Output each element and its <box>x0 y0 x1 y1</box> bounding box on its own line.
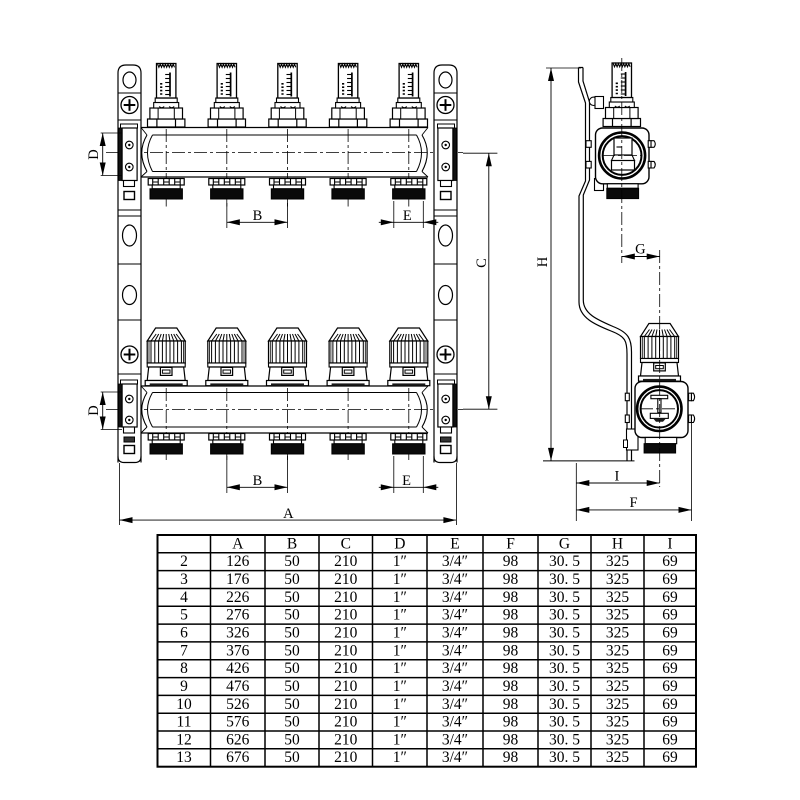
svg-text:210: 210 <box>334 749 358 766</box>
svg-text:69: 69 <box>662 571 678 588</box>
svg-text:30. 5: 30. 5 <box>549 678 580 695</box>
svg-text:69: 69 <box>662 589 678 606</box>
svg-text:H: H <box>612 535 623 552</box>
svg-text:50: 50 <box>284 553 300 570</box>
svg-text:98: 98 <box>503 589 519 606</box>
svg-text:1″: 1″ <box>393 625 407 642</box>
svg-text:376: 376 <box>226 642 250 659</box>
svg-text:30. 5: 30. 5 <box>549 696 580 713</box>
svg-text:30. 5: 30. 5 <box>549 589 580 606</box>
svg-text:30. 5: 30. 5 <box>549 660 580 677</box>
svg-text:11: 11 <box>177 714 192 731</box>
svg-text:325: 325 <box>606 714 630 731</box>
svg-text:3/4″: 3/4″ <box>442 589 468 606</box>
svg-text:50: 50 <box>284 660 300 677</box>
svg-text:210: 210 <box>334 714 358 731</box>
svg-text:98: 98 <box>503 678 519 695</box>
svg-text:B: B <box>253 208 263 224</box>
svg-text:4: 4 <box>180 589 188 606</box>
svg-text:G: G <box>635 241 646 257</box>
svg-text:98: 98 <box>503 553 519 570</box>
svg-text:50: 50 <box>284 714 300 731</box>
svg-text:98: 98 <box>503 607 519 624</box>
svg-text:E: E <box>450 535 459 552</box>
svg-text:30. 5: 30. 5 <box>549 749 580 766</box>
svg-text:69: 69 <box>662 660 678 677</box>
svg-text:30. 5: 30. 5 <box>549 731 580 748</box>
svg-text:3: 3 <box>180 571 188 588</box>
svg-text:30. 5: 30. 5 <box>549 642 580 659</box>
svg-text:69: 69 <box>662 642 678 659</box>
svg-text:210: 210 <box>334 625 358 642</box>
svg-text:50: 50 <box>284 696 300 713</box>
svg-text:210: 210 <box>334 731 358 748</box>
svg-text:1″: 1″ <box>393 642 407 659</box>
svg-text:69: 69 <box>662 749 678 766</box>
svg-text:325: 325 <box>606 660 630 677</box>
svg-text:50: 50 <box>284 571 300 588</box>
svg-text:98: 98 <box>503 731 519 748</box>
svg-text:325: 325 <box>606 625 630 642</box>
svg-text:50: 50 <box>284 625 300 642</box>
svg-text:3/4″: 3/4″ <box>442 660 468 677</box>
svg-text:D: D <box>86 149 102 159</box>
svg-text:8: 8 <box>180 660 188 677</box>
svg-text:3/4″: 3/4″ <box>442 553 468 570</box>
svg-text:210: 210 <box>334 553 358 570</box>
svg-text:30. 5: 30. 5 <box>549 607 580 624</box>
svg-text:3/4″: 3/4″ <box>442 571 468 588</box>
svg-text:210: 210 <box>334 571 358 588</box>
svg-text:69: 69 <box>662 731 678 748</box>
svg-text:13: 13 <box>176 749 192 766</box>
svg-text:C: C <box>341 535 351 552</box>
svg-text:30. 5: 30. 5 <box>549 571 580 588</box>
svg-text:326: 326 <box>226 625 250 642</box>
svg-text:1″: 1″ <box>393 731 407 748</box>
svg-text:F: F <box>506 535 515 552</box>
svg-text:12: 12 <box>176 731 192 748</box>
svg-text:69: 69 <box>662 607 678 624</box>
svg-text:210: 210 <box>334 696 358 713</box>
svg-text:98: 98 <box>503 642 519 659</box>
svg-text:98: 98 <box>503 660 519 677</box>
svg-text:1″: 1″ <box>393 553 407 570</box>
svg-text:B: B <box>253 473 263 489</box>
svg-text:69: 69 <box>662 678 678 695</box>
svg-text:69: 69 <box>662 696 678 713</box>
svg-text:3/4″: 3/4″ <box>442 678 468 695</box>
svg-text:3/4″: 3/4″ <box>442 607 468 624</box>
svg-text:1″: 1″ <box>393 571 407 588</box>
svg-text:1″: 1″ <box>393 589 407 606</box>
svg-text:I: I <box>667 535 672 552</box>
svg-text:G: G <box>559 535 570 552</box>
svg-text:1″: 1″ <box>393 678 407 695</box>
svg-text:1″: 1″ <box>393 660 407 677</box>
svg-text:126: 126 <box>226 553 250 570</box>
svg-text:426: 426 <box>226 660 250 677</box>
svg-text:3/4″: 3/4″ <box>442 714 468 731</box>
svg-text:325: 325 <box>606 696 630 713</box>
svg-text:E: E <box>402 473 411 489</box>
svg-text:5: 5 <box>180 607 188 624</box>
svg-text:30. 5: 30. 5 <box>549 714 580 731</box>
svg-text:30. 5: 30. 5 <box>549 553 580 570</box>
svg-text:1″: 1″ <box>393 749 407 766</box>
svg-text:1″: 1″ <box>393 607 407 624</box>
svg-text:2: 2 <box>180 553 188 570</box>
svg-text:50: 50 <box>284 749 300 766</box>
svg-text:50: 50 <box>284 607 300 624</box>
svg-text:325: 325 <box>606 589 630 606</box>
svg-text:325: 325 <box>606 571 630 588</box>
svg-text:210: 210 <box>334 589 358 606</box>
svg-text:210: 210 <box>334 607 358 624</box>
svg-text:3/4″: 3/4″ <box>442 749 468 766</box>
svg-text:325: 325 <box>606 553 630 570</box>
svg-text:98: 98 <box>503 696 519 713</box>
svg-text:210: 210 <box>334 678 358 695</box>
svg-text:A: A <box>283 506 294 522</box>
svg-text:98: 98 <box>503 625 519 642</box>
svg-text:30. 5: 30. 5 <box>549 625 580 642</box>
svg-text:I: I <box>614 469 619 485</box>
svg-text:C: C <box>474 258 490 268</box>
svg-text:325: 325 <box>606 749 630 766</box>
svg-text:98: 98 <box>503 714 519 731</box>
svg-text:526: 526 <box>226 696 250 713</box>
svg-text:626: 626 <box>226 731 250 748</box>
svg-text:10: 10 <box>176 696 192 713</box>
svg-text:576: 576 <box>226 714 250 731</box>
svg-text:325: 325 <box>606 731 630 748</box>
svg-text:D: D <box>394 535 405 552</box>
svg-text:325: 325 <box>606 678 630 695</box>
svg-text:1″: 1″ <box>393 714 407 731</box>
svg-text:98: 98 <box>503 571 519 588</box>
svg-text:3/4″: 3/4″ <box>442 731 468 748</box>
svg-text:E: E <box>403 208 412 224</box>
svg-text:D: D <box>86 405 102 415</box>
svg-text:50: 50 <box>284 589 300 606</box>
svg-text:6: 6 <box>180 625 188 642</box>
svg-text:3/4″: 3/4″ <box>442 642 468 659</box>
svg-text:69: 69 <box>662 625 678 642</box>
svg-text:210: 210 <box>334 660 358 677</box>
svg-text:676: 676 <box>226 749 250 766</box>
svg-text:H: H <box>535 256 551 267</box>
svg-text:98: 98 <box>503 749 519 766</box>
svg-text:69: 69 <box>662 553 678 570</box>
svg-text:210: 210 <box>334 642 358 659</box>
svg-text:B: B <box>287 535 297 552</box>
svg-text:176: 176 <box>226 571 250 588</box>
svg-text:276: 276 <box>226 607 250 624</box>
svg-text:476: 476 <box>226 678 250 695</box>
svg-text:50: 50 <box>284 678 300 695</box>
svg-text:F: F <box>629 495 637 511</box>
svg-text:A: A <box>232 535 244 552</box>
svg-text:226: 226 <box>226 589 250 606</box>
svg-text:69: 69 <box>662 714 678 731</box>
svg-text:325: 325 <box>606 642 630 659</box>
svg-text:50: 50 <box>284 731 300 748</box>
svg-text:50: 50 <box>284 642 300 659</box>
svg-text:1″: 1″ <box>393 696 407 713</box>
svg-text:3/4″: 3/4″ <box>442 696 468 713</box>
svg-text:325: 325 <box>606 607 630 624</box>
svg-text:7: 7 <box>180 642 188 659</box>
svg-text:9: 9 <box>180 678 188 695</box>
svg-text:3/4″: 3/4″ <box>442 625 468 642</box>
